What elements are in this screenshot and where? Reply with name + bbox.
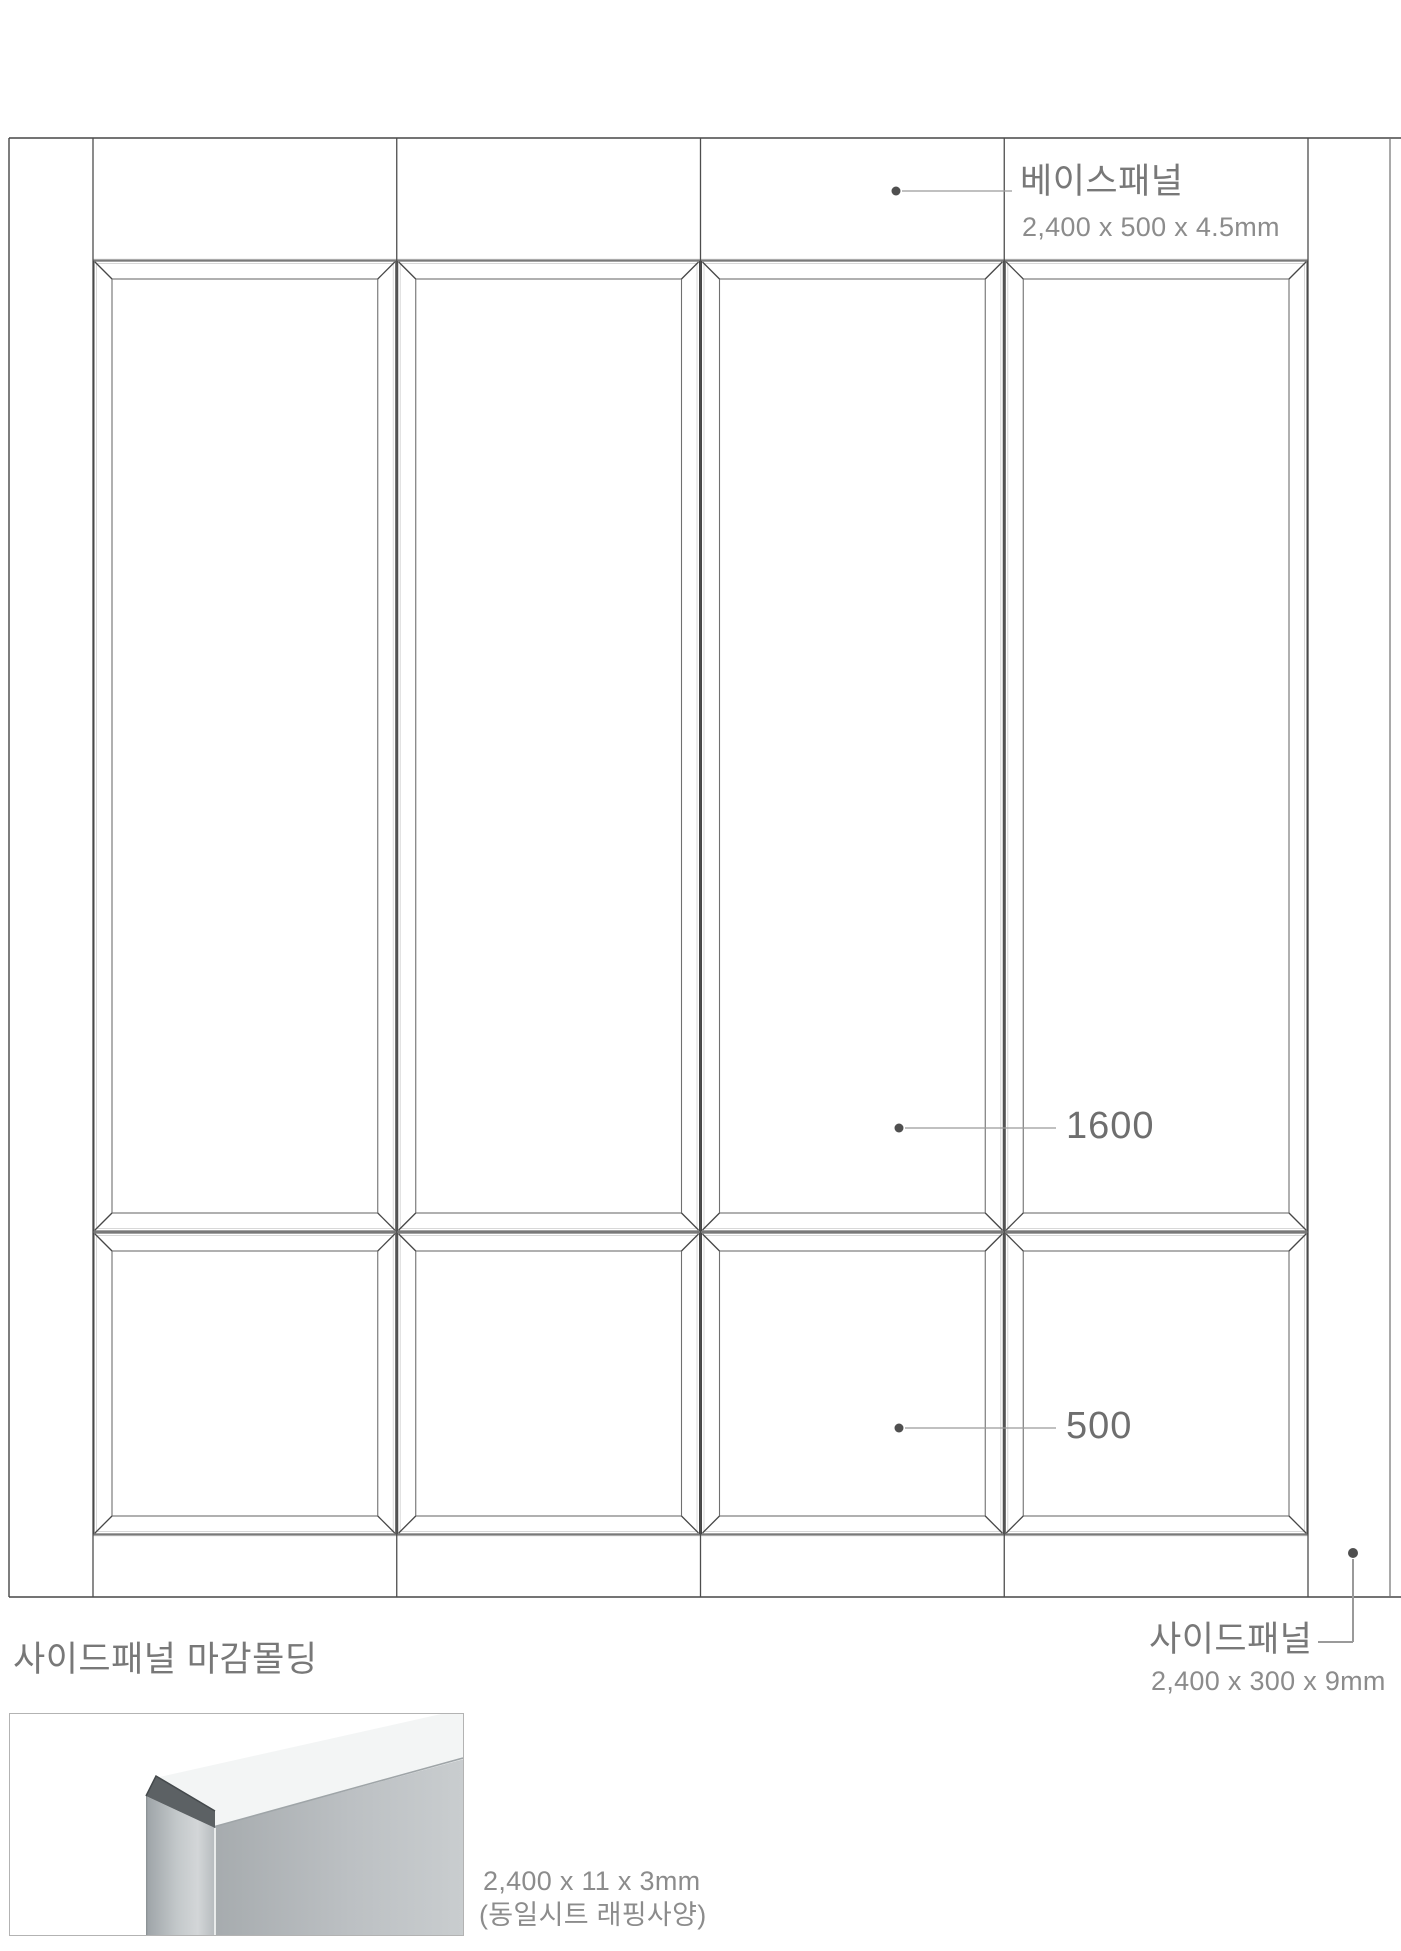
molding-wrap-spec: (동일시트 래핑사양) — [479, 1901, 707, 1931]
side-panel-label: 사이드패널 — [1149, 1621, 1313, 1660]
tall-panel-height-label: 1600 — [1066, 1106, 1155, 1148]
leader-base-panel — [892, 187, 1013, 196]
leader-500 — [895, 1424, 1057, 1433]
elevation-outer-frame — [9, 138, 1401, 1597]
square-panel-height-label: 500 — [1066, 1406, 1132, 1448]
molding-photo — [9, 1713, 464, 1936]
base-panel-dimension: 2,400 x 500 x 4.5mm — [1022, 213, 1280, 243]
molding-dimension: 2,400 x 11 x 3mm — [483, 1867, 700, 1897]
spec-sheet-page: 베이스패널 2,400 x 500 x 4.5mm 1600 500 사이드패널… — [0, 0, 1401, 1951]
side-panel-dimension: 2,400 x 300 x 9mm — [1151, 1667, 1386, 1697]
leader-1600 — [895, 1124, 1057, 1133]
leader-side-panel — [1318, 1548, 1358, 1642]
base-panel-label: 베이스패널 — [1020, 163, 1184, 202]
molding-section-title: 사이드패널 마감몰딩 — [13, 1641, 318, 1680]
molding-render-image — [10, 1714, 463, 1935]
